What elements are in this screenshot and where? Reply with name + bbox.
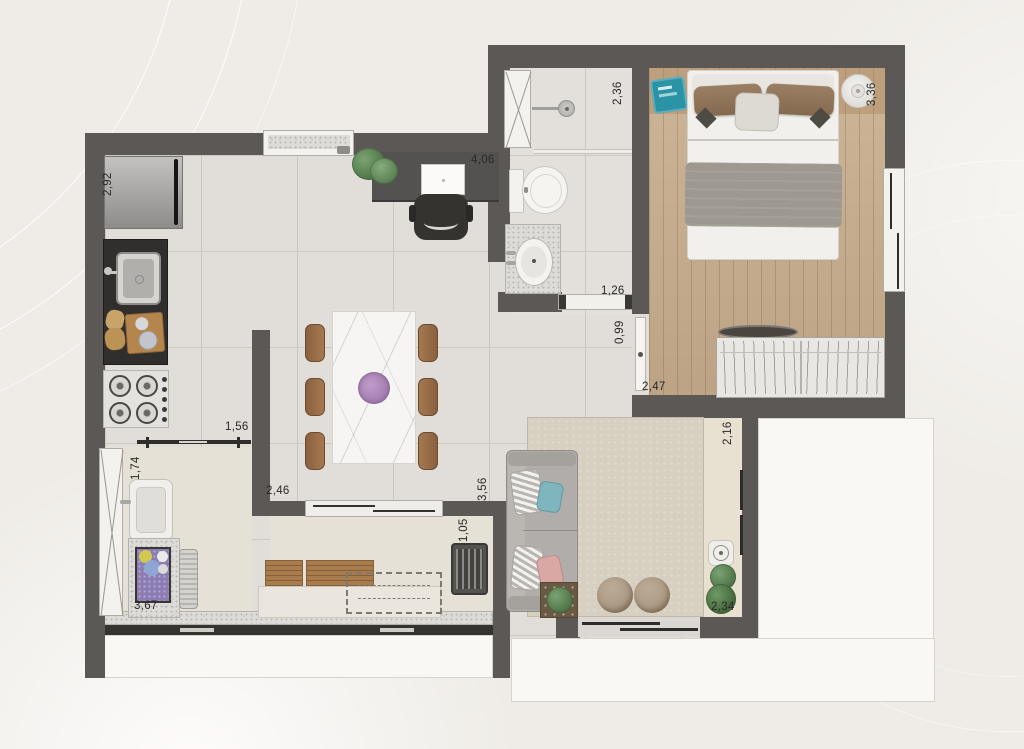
door-cap: [625, 295, 632, 309]
speaker-icon: [708, 540, 734, 566]
washbasin-drain: [532, 259, 536, 263]
wall-top-right: [488, 45, 905, 68]
rail-gap: [180, 628, 214, 632]
stove-knob: [162, 377, 167, 382]
stove-knob: [162, 407, 167, 412]
window-sash: [897, 233, 899, 289]
dim-side-balcony: 2,16: [722, 421, 735, 445]
wardrobe-clothes: [803, 341, 881, 394]
monstera-plant-icon: [370, 158, 398, 184]
dining-chair: [418, 324, 438, 362]
dining-chair: [305, 378, 325, 416]
tank-faucet: [120, 500, 131, 504]
laptop: [421, 164, 465, 195]
washboard: [179, 549, 198, 609]
fridge: [104, 156, 183, 229]
wall-bath-south: [498, 292, 562, 312]
sofa-armrest: [508, 452, 576, 466]
side-balcony-door-handle: [740, 515, 743, 555]
burner: [109, 402, 131, 424]
bowl: [135, 317, 149, 331]
dim-living-balcony-door: 2,34: [711, 601, 735, 614]
chair-arm: [466, 205, 473, 222]
chair-seat-line: [424, 216, 458, 230]
kitchen-window: [263, 130, 354, 156]
toilet-button: [524, 187, 528, 193]
shower-head-center: [565, 107, 569, 111]
laundry-basket: [135, 547, 171, 603]
tray-item: [658, 86, 672, 91]
stove-knob: [162, 387, 167, 392]
door-handle: [146, 437, 149, 448]
speaker-center: [719, 551, 723, 555]
dim-bath-counter: 1,26: [601, 285, 625, 298]
wall-dining-south-e: [443, 501, 513, 516]
sink-drain: [135, 275, 144, 284]
gray-throw: [685, 162, 843, 228]
door-handle: [237, 437, 240, 448]
wall-dining-south-w: [252, 501, 307, 516]
wall-living-south-w: [556, 617, 580, 638]
stove: [103, 370, 169, 428]
dim-hall: 0,99: [614, 320, 627, 344]
sink-faucet-knob: [104, 267, 112, 275]
door-track: [620, 628, 698, 631]
dim-dining-wall: 2,46: [266, 485, 290, 498]
sofa-seat-line: [523, 530, 577, 531]
lamp-center: [856, 89, 860, 93]
wardrobe-divider: [800, 341, 802, 394]
window-handle: [337, 146, 350, 154]
bathroom-window: [504, 70, 531, 148]
fridge-door: [174, 159, 178, 225]
door-track-gap: [179, 441, 207, 443]
door-track: [582, 622, 660, 625]
folding-table-line: [358, 585, 430, 586]
faucet: [506, 261, 516, 265]
dining-chair: [305, 432, 325, 470]
dim-laundry: 1,74: [130, 456, 143, 480]
door-handle: [638, 352, 643, 357]
pillow-center: [734, 92, 779, 132]
plant-icon: [547, 587, 573, 613]
tray-item: [659, 92, 677, 97]
detergent-cap: [158, 564, 168, 574]
shower-glass: [534, 149, 632, 154]
window-pane: [313, 505, 375, 507]
dining-chair: [418, 432, 438, 470]
dining-chair: [305, 324, 325, 362]
bread: [104, 327, 127, 352]
laundry-tank: [129, 479, 173, 541]
laptop-logo: [442, 179, 445, 182]
wardrobe-rail: [720, 352, 881, 353]
sheet-fold: [688, 139, 838, 141]
wall-bedroom-east-a: [885, 45, 905, 170]
shower-head-icon: [558, 100, 575, 117]
bath-counter: [505, 224, 561, 294]
toilet: [509, 166, 569, 214]
folding-table-line: [358, 598, 430, 599]
wall-living-south-e: [700, 617, 758, 638]
dining-table: [332, 311, 416, 464]
kitchen-sink: [116, 252, 161, 305]
door-cap: [559, 295, 566, 309]
wall-top-a: [85, 133, 265, 155]
burner: [136, 402, 158, 424]
grill: [451, 543, 488, 595]
kitchen-counter: [103, 239, 168, 365]
chair-arm: [409, 205, 416, 222]
neighbor-outline-bottom-right: [511, 638, 935, 702]
dim-kitchen-side: 2,92: [102, 172, 115, 196]
folding-table-outline: [346, 572, 442, 614]
dim-grill-counter: 1,05: [458, 518, 471, 542]
side-table: [540, 582, 578, 618]
dim-bedroom: 3,36: [866, 82, 879, 106]
bench-back-slats: [265, 560, 303, 587]
dim-living-divider: 3,56: [477, 477, 490, 501]
toilet-seat: [530, 174, 562, 208]
detergent-cap: [157, 551, 168, 562]
pouf: [634, 577, 670, 613]
grill-grate: [456, 549, 483, 589]
dim-top-wall: 4,06: [471, 154, 495, 167]
double-bed: [687, 70, 839, 260]
burner: [109, 375, 131, 397]
faucet: [506, 251, 516, 255]
kitchen-sliding-door: [137, 437, 251, 448]
window-pane: [373, 510, 435, 512]
floor-plan: 2,92 4,06 2,36 3,36 1,26 0,99 2,47 2,16 …: [0, 0, 1024, 749]
dim-kitchen-passage: 1,56: [225, 421, 249, 434]
stove-knob: [162, 417, 167, 422]
bedside-tray: [650, 76, 688, 114]
bowl: [138, 330, 158, 350]
wardrobe: [716, 337, 885, 398]
wall-bath-bedroom-divider: [632, 68, 649, 314]
side-balcony-door-handle: [740, 470, 743, 510]
neighbor-outline-right: [758, 418, 934, 639]
laundry-window: [99, 448, 123, 616]
bedroom-window: [883, 168, 905, 292]
stove-knob: [162, 397, 167, 402]
living-sliding-door: [578, 617, 700, 637]
neighbor-outline-bottom: [103, 635, 493, 678]
rail-gap: [380, 628, 414, 632]
tank-basin: [136, 487, 166, 533]
dining-chair: [418, 378, 438, 416]
wall-living-east: [742, 408, 758, 638]
burner: [136, 375, 158, 397]
dim-bathroom: 2,36: [612, 81, 625, 105]
bedroom-door-leaf: [635, 317, 646, 391]
dining-window: [305, 500, 443, 517]
dim-service-balcony: 3,67: [134, 600, 158, 613]
flower-centerpiece: [358, 372, 390, 404]
office-chair: [414, 194, 468, 240]
window-sash: [890, 173, 892, 229]
pouf: [597, 577, 633, 613]
washbasin: [515, 238, 553, 286]
cutting-board: [125, 312, 166, 355]
dim-bedroom-bottom: 2,47: [642, 381, 666, 394]
balcony-glass-rail: [103, 625, 493, 635]
wardrobe-clothes: [720, 341, 800, 394]
wall-bedroom-south: [632, 395, 905, 418]
